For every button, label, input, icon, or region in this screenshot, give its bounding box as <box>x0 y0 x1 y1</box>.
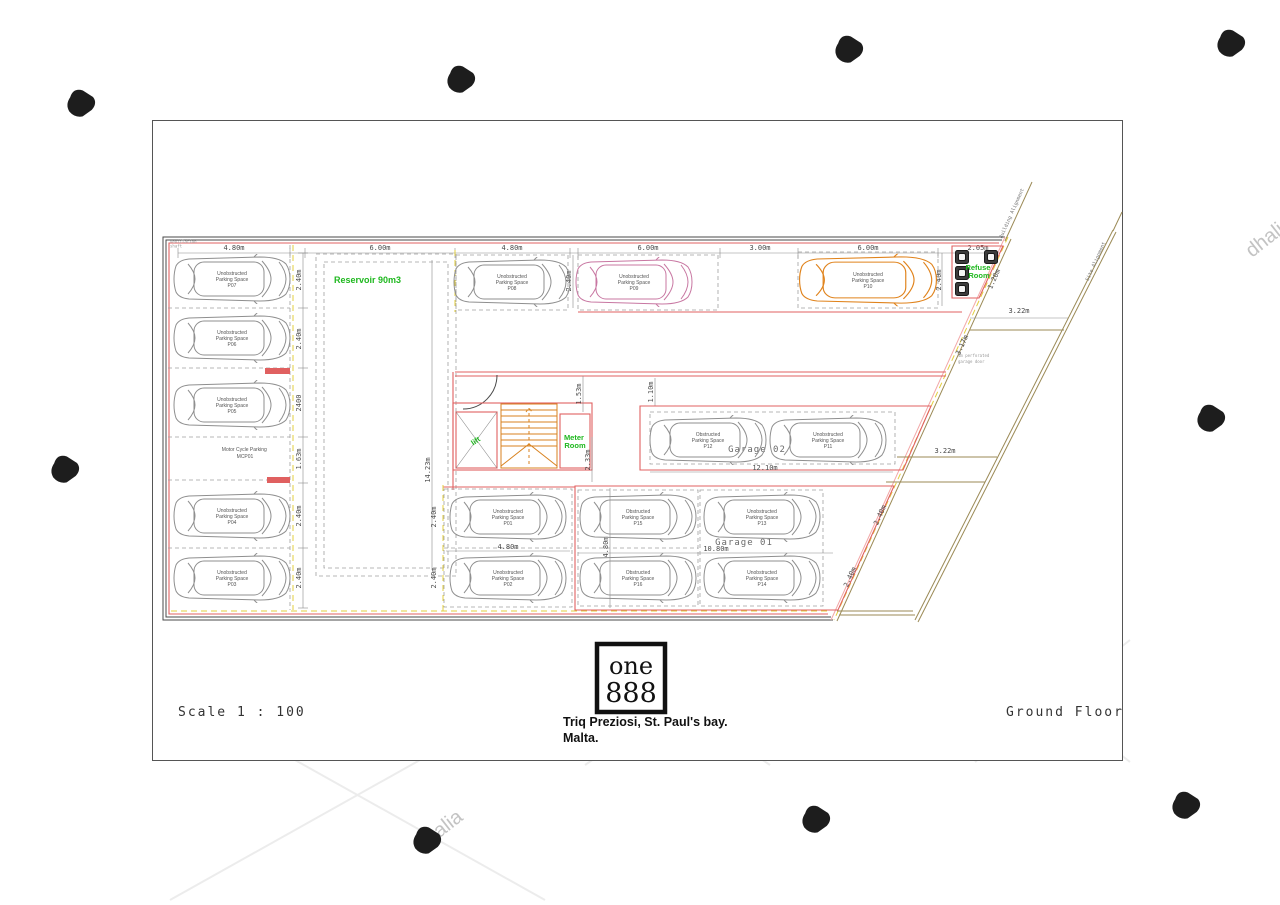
svg-text:10.80m: 10.80m <box>703 545 728 553</box>
svg-text:2.33m: 2.33m <box>584 449 592 470</box>
svg-text:2.40m: 2.40m <box>295 505 303 526</box>
svg-text:3.00m: 3.00m <box>749 244 770 252</box>
svg-text:6.00m: 6.00m <box>369 244 390 252</box>
address-line2: Malta. <box>563 731 598 745</box>
svg-text:4.80m: 4.80m <box>501 244 522 252</box>
svg-text:4.80m: 4.80m <box>497 543 518 551</box>
floor-plan-page: propertymalta rent | buy | sell dhalia d… <box>0 0 1280 905</box>
svg-text:4.80m: 4.80m <box>223 244 244 252</box>
refuse-bin <box>956 251 969 264</box>
svg-text:1.63m: 1.63m <box>295 448 303 469</box>
svg-text:2.40m: 2.40m <box>430 567 438 588</box>
meter-room-label: Meter Room <box>564 433 586 450</box>
svg-text:2400: 2400 <box>295 395 303 412</box>
svg-text:1.10m: 1.10m <box>647 381 655 402</box>
svg-text:2.40m: 2.40m <box>430 506 438 527</box>
svg-text:3.22m: 3.22m <box>934 447 955 455</box>
svg-text:6.00m: 6.00m <box>637 244 658 252</box>
svg-text:2.40m: 2.40m <box>295 328 303 349</box>
floor-label: Ground Floor <box>1006 705 1124 720</box>
svg-text:4.80m: 4.80m <box>602 536 610 557</box>
garage-door-note-line1: 4m perforated <box>958 353 990 358</box>
refuse-bin <box>985 251 998 264</box>
reservoir-label: Reservoir 90m3 <box>334 275 401 285</box>
svg-text:3.22m: 3.22m <box>1008 307 1029 315</box>
svg-text:12.10m: 12.10m <box>752 464 777 472</box>
logo-text-888: 888 <box>605 678 657 709</box>
svg-text:2.40m: 2.40m <box>295 269 303 290</box>
scale-label: Scale 1 : 100 <box>178 705 306 720</box>
svg-text:1.53m: 1.53m <box>575 383 583 404</box>
svg-text:6.00m: 6.00m <box>857 244 878 252</box>
svg-text:2.40m: 2.40m <box>295 567 303 588</box>
svg-text:14.23m: 14.23m <box>424 457 432 482</box>
wall-stub <box>265 368 290 374</box>
address-line1: Triq Preziosi, St. Paul's bay. <box>563 715 728 729</box>
refuse-bin <box>956 283 969 296</box>
logo-text-one: one <box>609 652 653 680</box>
refuse-room-label: Refuse Room <box>965 263 992 280</box>
svg-text:dhalia: dhalia <box>1242 211 1280 262</box>
wall-stub <box>267 477 290 483</box>
garage-door-note-line2: garage door <box>958 359 985 364</box>
